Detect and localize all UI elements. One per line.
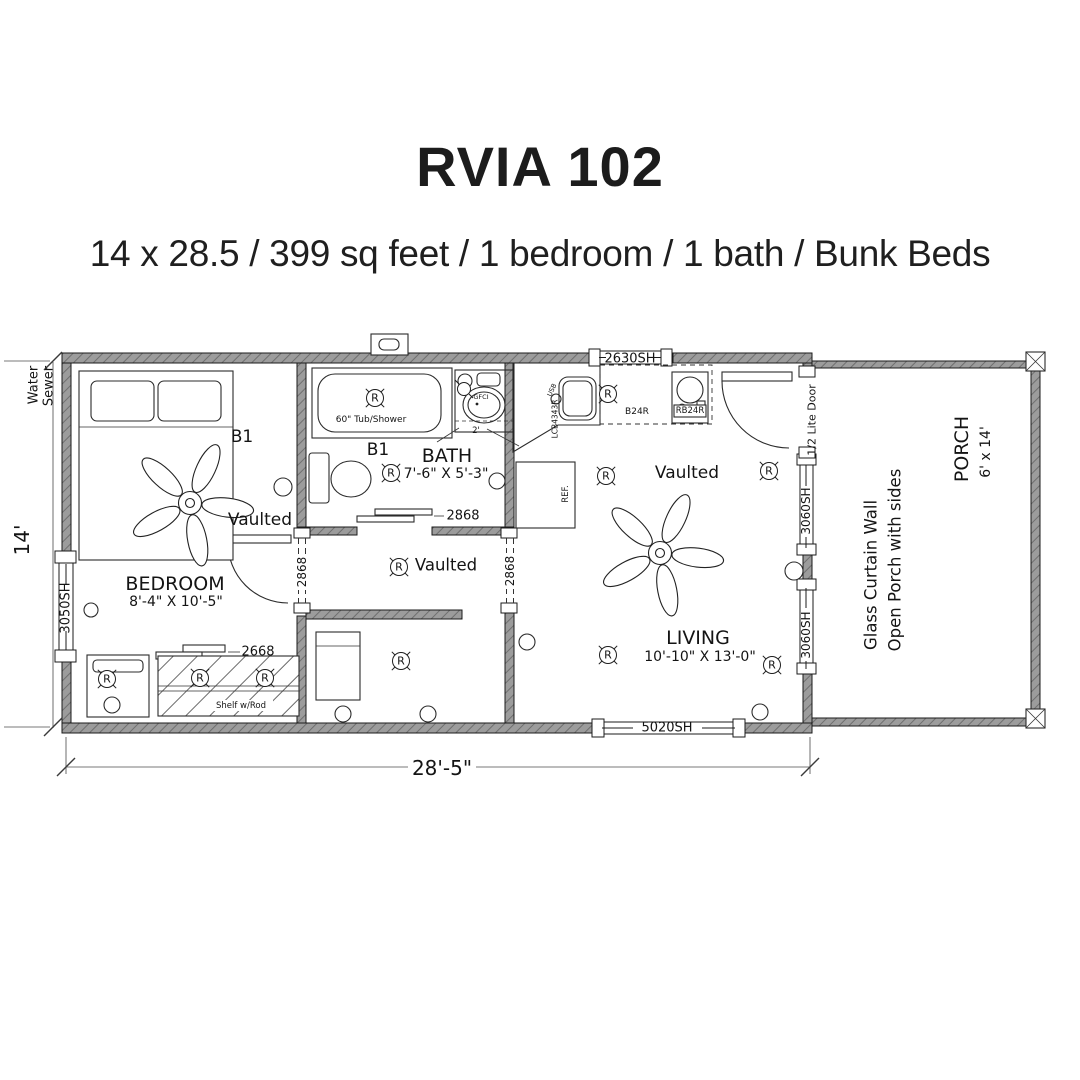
exterior-vent	[371, 334, 408, 355]
receptacle-symbol: R	[387, 467, 395, 480]
bunk-room	[316, 632, 360, 700]
closet-shelf-label: Shelf w/Rod	[216, 701, 266, 711]
tub-label: 60" Tub/Shower	[336, 415, 407, 425]
living-name: LIVING	[666, 627, 730, 649]
receptacle-symbol: R	[371, 392, 379, 405]
window-label-left: 3050SH	[59, 582, 74, 633]
fridge-label: REF.	[561, 485, 571, 503]
page: RVIA 102 14 x 28.5 / 399 sq feet / 1 bed…	[0, 0, 1080, 1080]
receptacle-symbol: R	[261, 672, 269, 685]
gfci-label: GFCI	[473, 393, 488, 401]
receptacle-symbol: R	[768, 659, 776, 672]
porch-structure	[812, 352, 1045, 728]
bath-bunk-label: B1	[367, 440, 389, 460]
receptacle-symbol: R	[397, 655, 405, 668]
receptacle-symbol: R	[604, 388, 612, 401]
bath-name: BATH	[422, 445, 472, 467]
water-label: Water	[27, 365, 42, 404]
hall-east-opening-label: 2868	[503, 556, 517, 587]
receptacle-symbol: R	[103, 673, 111, 686]
floorplan-drawing: 3050SH 2630SH 5020SH 3060SH	[0, 0, 1080, 1080]
bedroom-name: BEDROOM	[125, 573, 224, 595]
window-label-bottom: 5020SH	[641, 721, 692, 736]
porch-name: PORCH	[951, 416, 973, 482]
living-ceiling-label: Vaulted	[655, 463, 719, 483]
hall-ceiling-label: Vaulted	[415, 556, 477, 575]
cabinet-label: B24R	[625, 407, 649, 417]
receptacle-symbol: R	[602, 470, 610, 483]
bedroom-bunk-label: B1	[231, 427, 253, 447]
receptacle-symbol: R	[604, 649, 612, 662]
window-label-right-lower: 3060SH	[799, 611, 813, 658]
height-dimension: 14'	[10, 525, 34, 556]
receptacle-symbol: R	[765, 465, 773, 478]
porch-size: 6' x 14'	[978, 426, 994, 478]
entry-door-label: 1/2 Lite Door	[806, 384, 819, 456]
receptacle-symbol: R	[196, 672, 204, 685]
window-label-right-upper: 3060SH	[799, 487, 813, 534]
kitchen-sink-label: LCB4343R	[551, 400, 560, 439]
ceiling-fan	[599, 491, 724, 618]
window-label-top: 2630SH	[604, 352, 655, 367]
range-label: RB24R	[676, 406, 705, 416]
sewer-label: Sewer	[42, 365, 57, 406]
living-size: 10'-10" X 13'-0"	[644, 649, 756, 665]
bedroom-ceiling-label: Vaulted	[228, 510, 292, 530]
bedroom-size: 8'-4" X 10'-5"	[129, 594, 223, 610]
usb-label: USB	[546, 382, 559, 397]
bath-fixtures: GFCI 2'	[309, 368, 519, 503]
bath-door-label: 2868	[446, 509, 479, 524]
hall-west-opening-label: 2868	[295, 557, 309, 588]
bath-size: 7'-6" X 5'-3"	[404, 466, 489, 482]
receptacle-symbol: R	[395, 561, 403, 574]
width-dimension: 28'-5"	[412, 756, 472, 780]
counter-dim-label: 2'	[472, 426, 480, 436]
porch-note-2: Open Porch with sides	[886, 469, 905, 652]
porch-note-1: Glass Curtain Wall	[862, 500, 881, 650]
